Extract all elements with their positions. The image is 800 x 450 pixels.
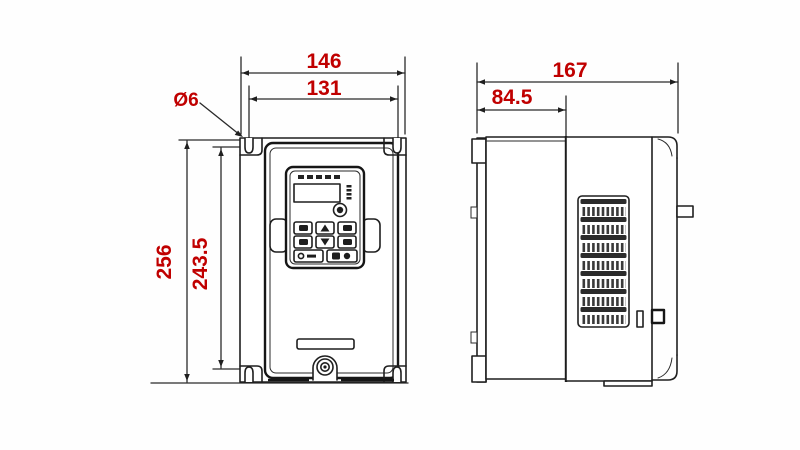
dim-label-167: 167: [552, 59, 587, 82]
arrowhead-right: [390, 96, 397, 102]
mounting-slot-top-right: [393, 138, 401, 153]
vent-bar: [581, 307, 627, 312]
arrowhead-right: [558, 107, 565, 113]
front-section-outline: [486, 137, 566, 379]
run-icon-bar: [307, 255, 316, 258]
button-glyph: [299, 225, 308, 231]
vent-bar: [581, 253, 627, 258]
bracket-top: [652, 137, 677, 158]
side-front-section: [486, 137, 566, 379]
arrowhead-up: [184, 142, 190, 149]
din-rail-tab: [677, 206, 693, 217]
mounting-slot-bottom-right: [393, 367, 401, 382]
button-stop-reset: [327, 250, 357, 262]
vent-bar: [581, 217, 627, 222]
screw-center-dot: [323, 365, 326, 368]
button-glyph: [343, 225, 352, 231]
arrowhead-up: [218, 149, 224, 156]
dim-front-depth: 84.5: [477, 86, 566, 136]
dim-hole-diameter: Ø6: [173, 90, 243, 137]
dimension-drawing: 146 131 Ø6 256: [0, 0, 800, 450]
dim-label-84-5: 84.5: [492, 86, 533, 109]
rear-foot: [604, 381, 652, 386]
dim-label-256: 256: [153, 244, 176, 279]
mounting-slot-top-left: [245, 138, 253, 153]
vent-bar: [581, 289, 627, 294]
leader-line: [200, 103, 240, 135]
stop-icon: [332, 253, 340, 260]
arrowhead-left: [242, 70, 249, 76]
side-clip: [652, 310, 664, 323]
side-view: 167 84.5: [471, 59, 693, 386]
ground-screw-boss: [313, 356, 337, 380]
plate-strip: [477, 138, 486, 382]
arrowhead-right: [397, 70, 404, 76]
rear-bracket: [652, 137, 693, 380]
plate-tab-bottom: [472, 356, 486, 382]
plate-clip: [471, 207, 477, 218]
display-screen: [294, 184, 340, 202]
potentiometer-knob-center: [337, 207, 343, 213]
dim-label-243-5: 243.5: [189, 237, 212, 290]
reset-icon: [344, 253, 350, 259]
keypad: [286, 167, 364, 268]
mounting-slot-bottom-left: [245, 367, 253, 382]
plate-tab-top: [472, 139, 486, 163]
arrowhead-down: [184, 374, 190, 381]
side-rear-section: [566, 137, 664, 386]
arrowhead-left: [250, 96, 257, 102]
arrowhead-left: [478, 79, 485, 85]
bracket-bottom: [652, 355, 677, 380]
bottom-vent-slot: [297, 339, 354, 349]
dim-label-d6: Ø6: [173, 90, 198, 111]
plate-clip: [471, 332, 477, 343]
dim-label-131: 131: [306, 77, 341, 100]
dim-label-146: 146: [306, 50, 341, 73]
front-view: 146 131 Ø6 256: [151, 50, 408, 383]
drawing-svg: 146 131 Ø6 256: [0, 0, 800, 450]
side-mounting-plate: [471, 138, 486, 382]
arrowhead-down: [218, 360, 224, 367]
arrowhead-left: [478, 107, 485, 113]
vent-bar: [581, 199, 627, 204]
vent-bar: [581, 235, 627, 240]
vent-bar: [581, 271, 627, 276]
button-glyph: [343, 239, 352, 245]
arrowhead-right: [670, 79, 677, 85]
bracket-bottom-chamfer: [658, 358, 672, 378]
button-glyph: [299, 239, 308, 245]
side-slot: [637, 311, 643, 327]
bracket-top-chamfer: [658, 139, 672, 156]
